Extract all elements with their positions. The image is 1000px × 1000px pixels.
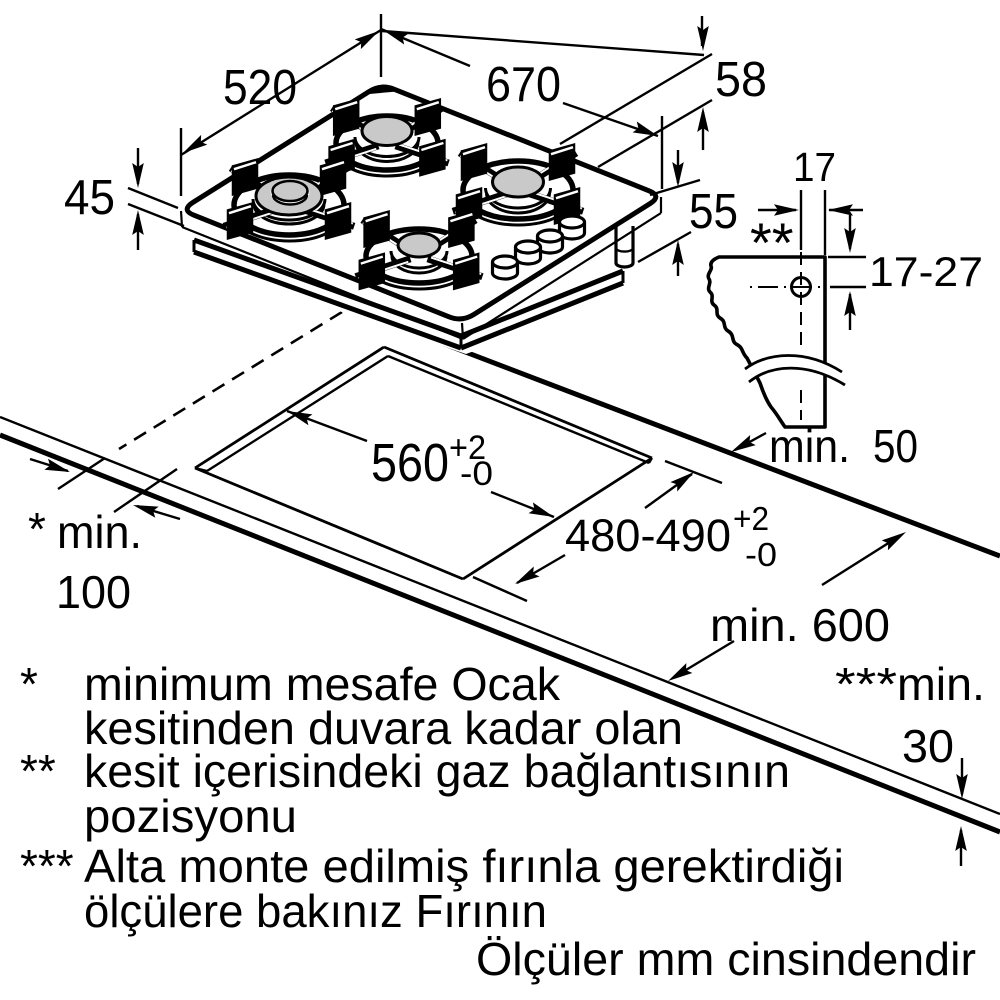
svg-text:**: ** — [20, 745, 56, 797]
svg-text:480-490: 480-490 — [565, 510, 731, 561]
svg-text:-0: -0 — [745, 536, 777, 573]
svg-text:560: 560 — [371, 433, 449, 493]
svg-text:55: 55 — [689, 185, 738, 239]
svg-text:Ölçüler mm cinsindendir: Ölçüler mm cinsindendir — [476, 933, 976, 985]
svg-text:17: 17 — [793, 144, 836, 190]
svg-text:58: 58 — [715, 53, 767, 107]
svg-text:***: *** — [835, 658, 897, 710]
svg-text:17-27: 17-27 — [869, 248, 983, 295]
svg-text:min.: min. — [57, 506, 142, 558]
svg-text:-0: -0 — [460, 455, 493, 493]
svg-text:*: * — [20, 658, 38, 710]
svg-text:***: *** — [20, 840, 74, 892]
svg-text:30: 30 — [902, 720, 954, 772]
svg-text:100: 100 — [56, 566, 131, 618]
svg-text:**: ** — [750, 211, 794, 274]
svg-text:ölçülere bakınız Fırının: ölçülere bakınız Fırının — [84, 885, 547, 937]
svg-text:50: 50 — [873, 420, 918, 472]
svg-text:670: 670 — [486, 58, 561, 112]
svg-text:pozisyonu: pozisyonu — [84, 790, 297, 842]
svg-text:min. 600: min. 600 — [710, 599, 890, 651]
svg-text:45: 45 — [64, 171, 115, 225]
svg-text:min.: min. — [897, 658, 985, 710]
svg-text:+2: +2 — [733, 500, 769, 537]
svg-text:520: 520 — [223, 61, 297, 115]
svg-text:*: * — [28, 503, 46, 555]
